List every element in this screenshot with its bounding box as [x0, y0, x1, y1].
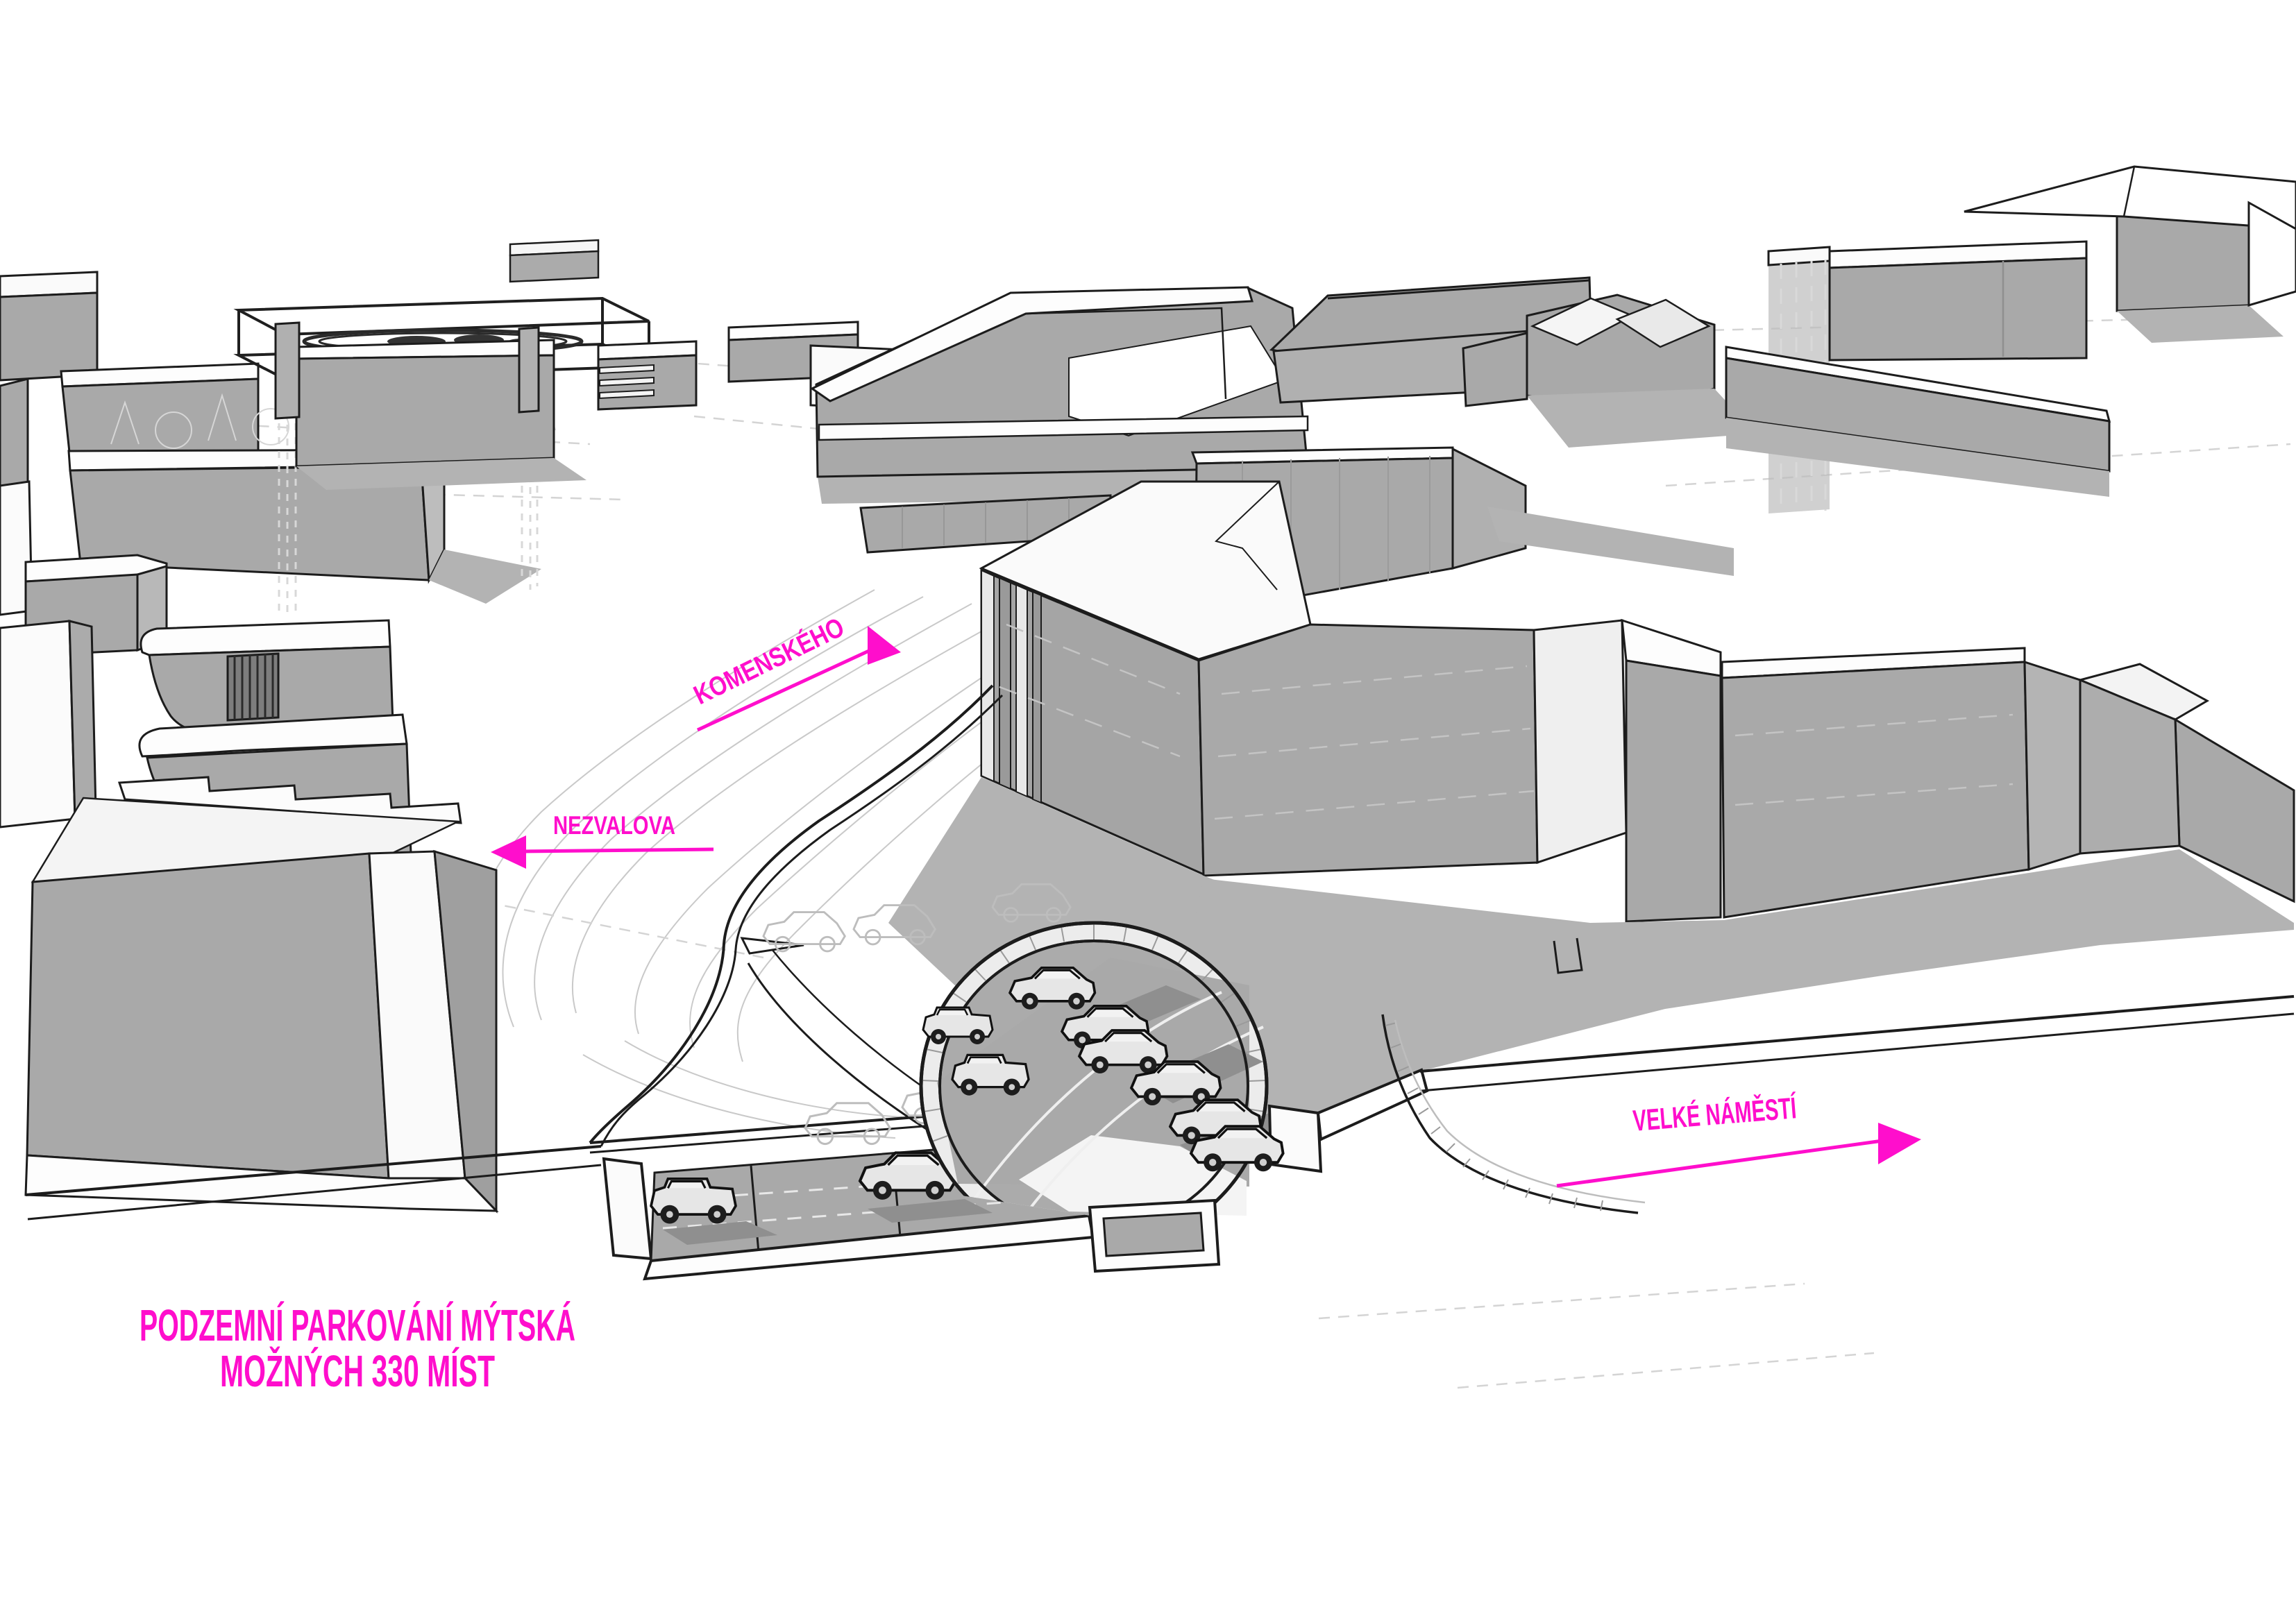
svg-text:MOŽNÝCH 330 MÍST: MOŽNÝCH 330 MÍST: [220, 1345, 495, 1396]
svg-text:NEZVALOVA: NEZVALOVA: [553, 811, 675, 840]
svg-text:PODZEMNÍ PARKOVÁNÍ MÝTSKÁ: PODZEMNÍ PARKOVÁNÍ MÝTSKÁ: [140, 1300, 575, 1350]
